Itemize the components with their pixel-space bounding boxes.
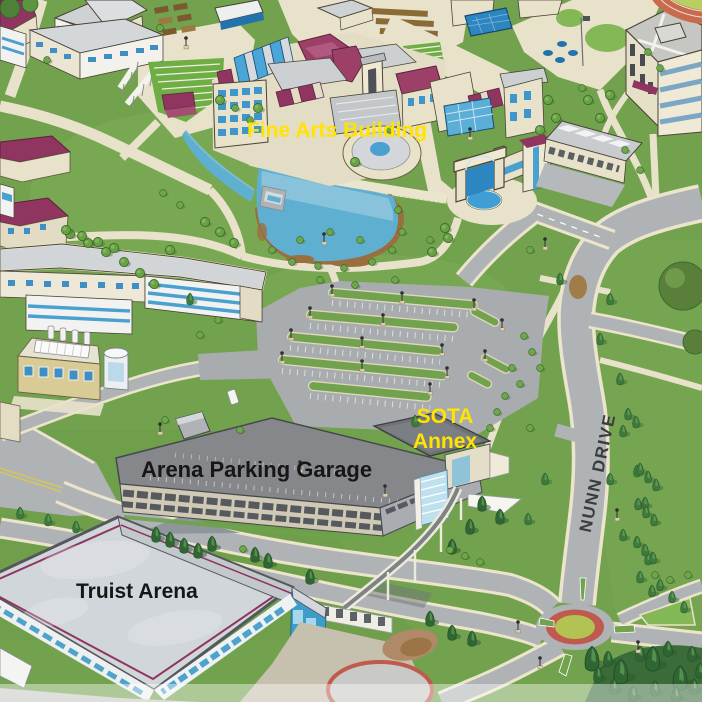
svg-text:Annex: Annex: [413, 430, 478, 453]
svg-text:Truist Arena: Truist Arena: [76, 580, 198, 603]
svg-text:SOTA: SOTA: [417, 405, 474, 428]
svg-text:Arena Parking Garage: Arena Parking Garage: [141, 457, 372, 482]
svg-text:Fine Arts Building: Fine Arts Building: [247, 119, 427, 142]
